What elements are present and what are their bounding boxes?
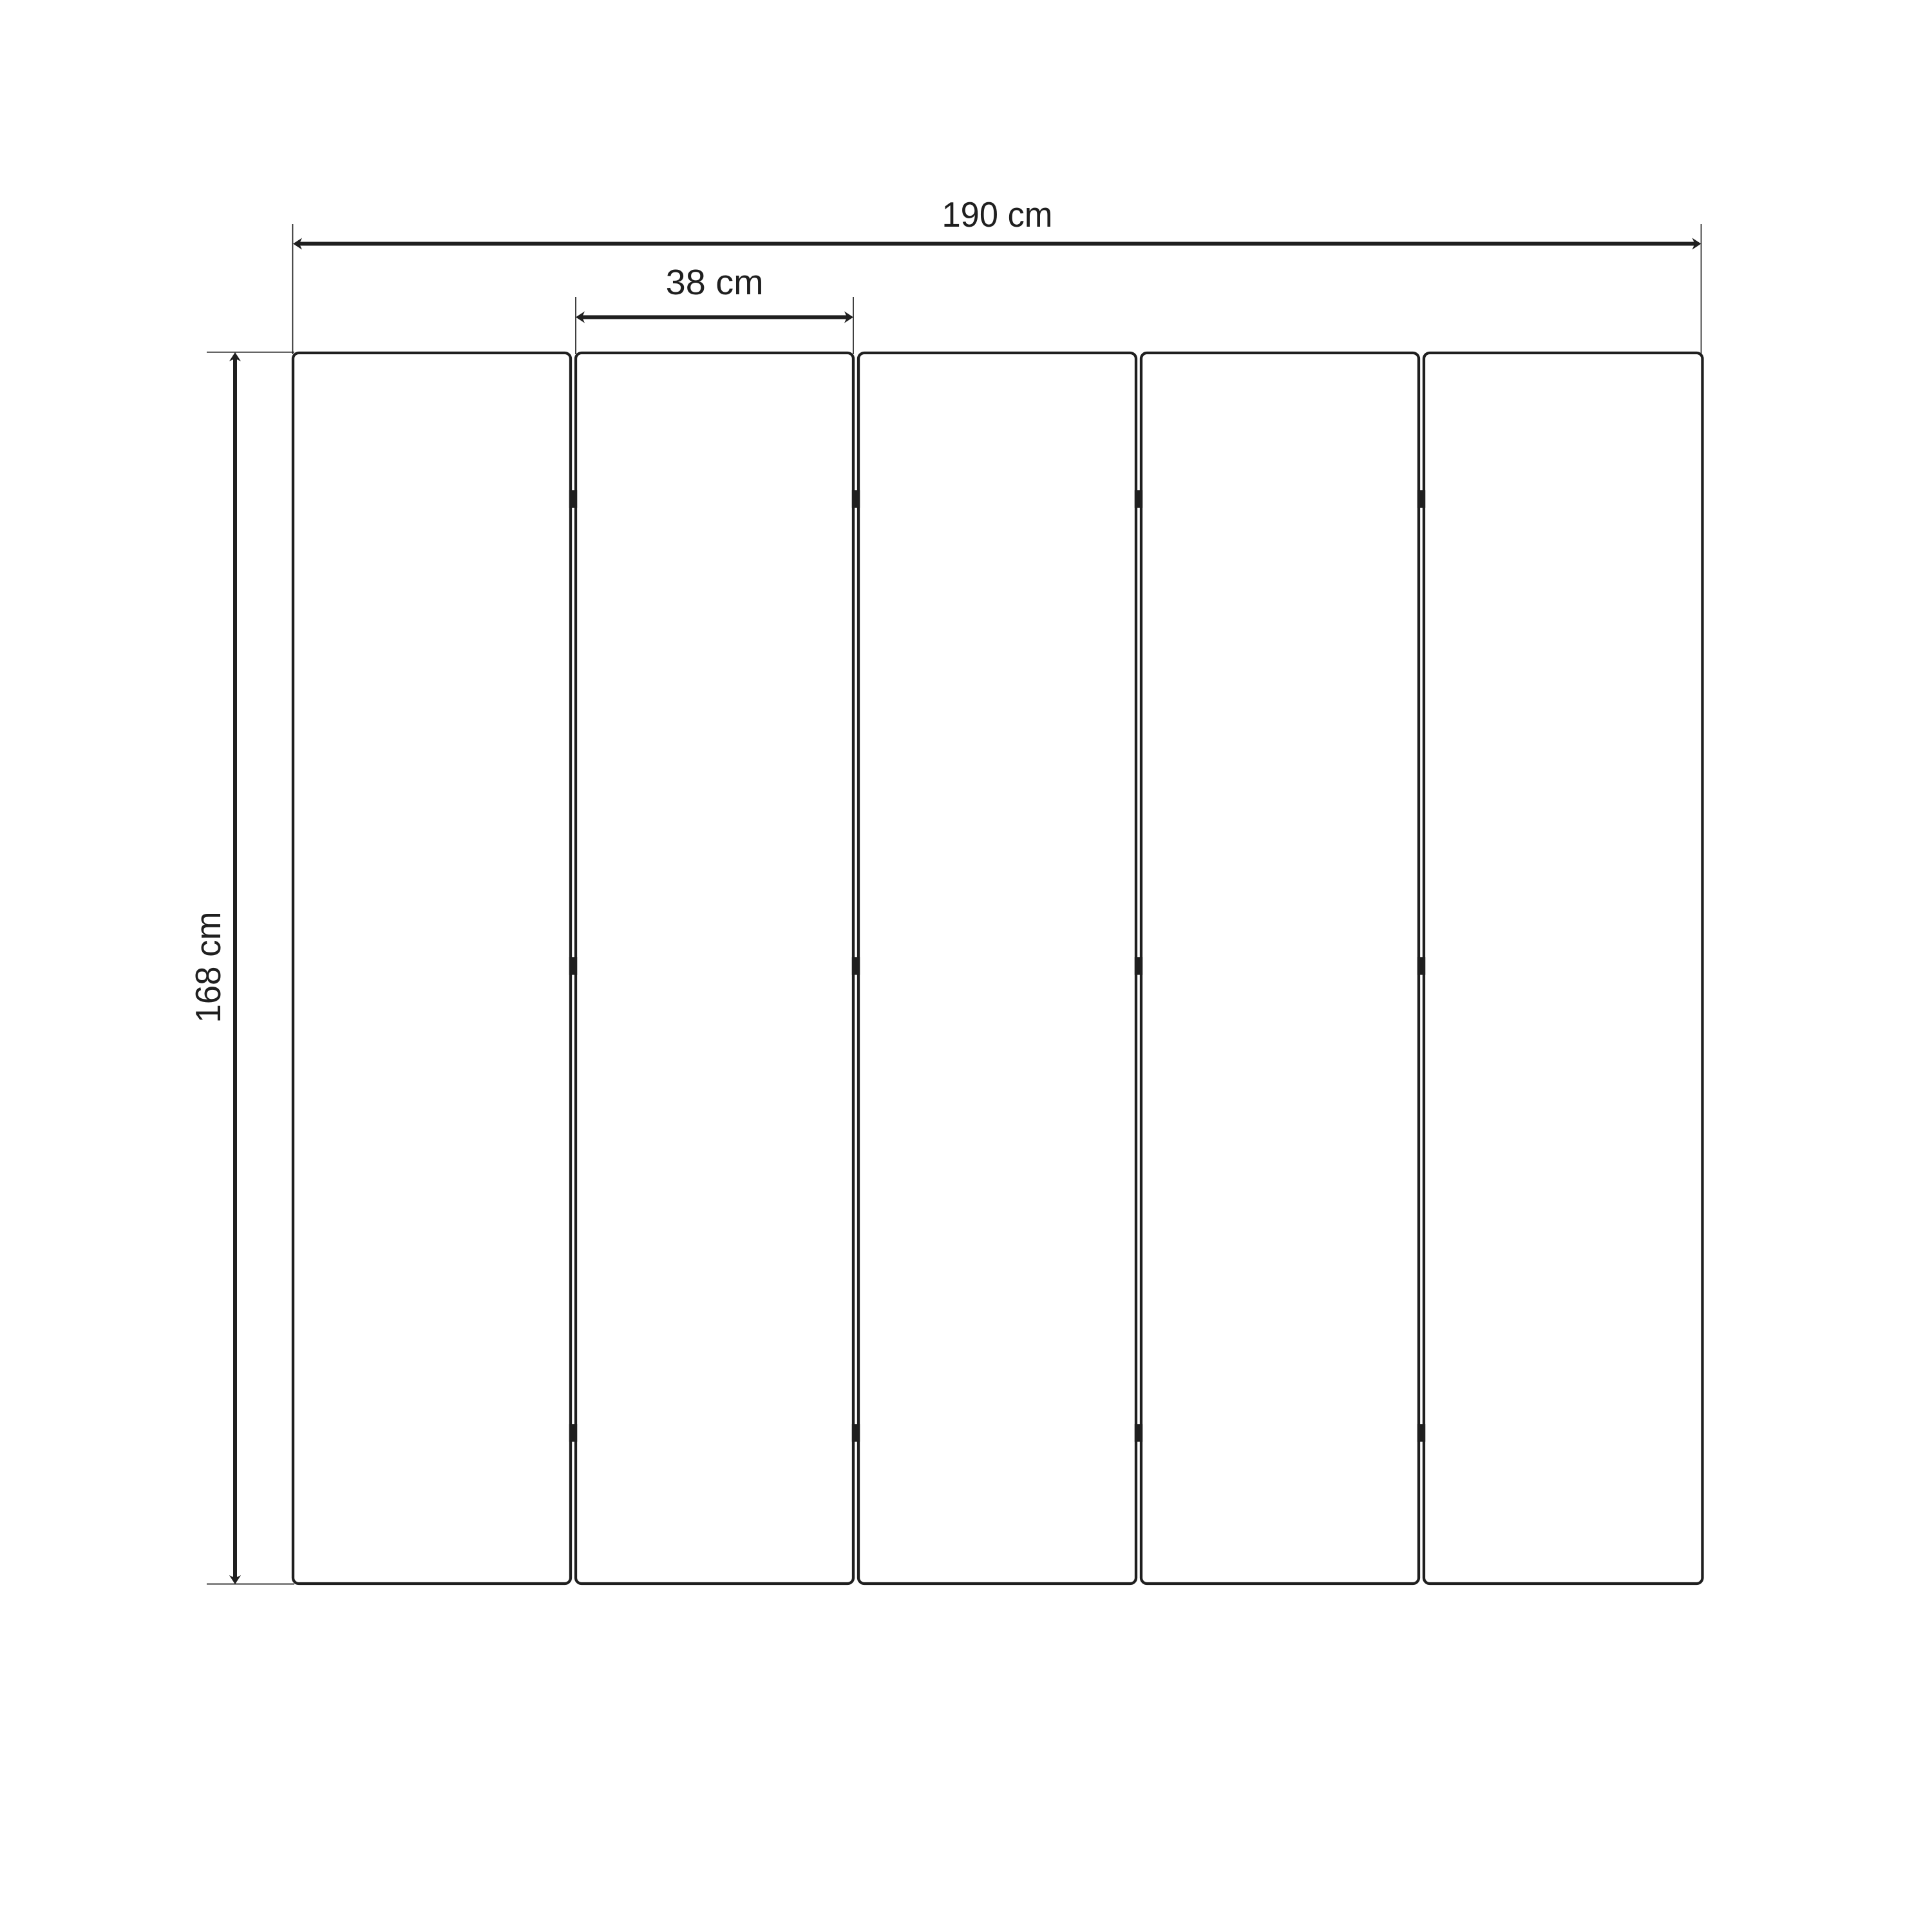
svg-text:38 cm: 38 cm xyxy=(666,262,764,302)
svg-text:190 cm: 190 cm xyxy=(942,194,1053,234)
svg-text:168 cm: 168 cm xyxy=(188,912,228,1023)
